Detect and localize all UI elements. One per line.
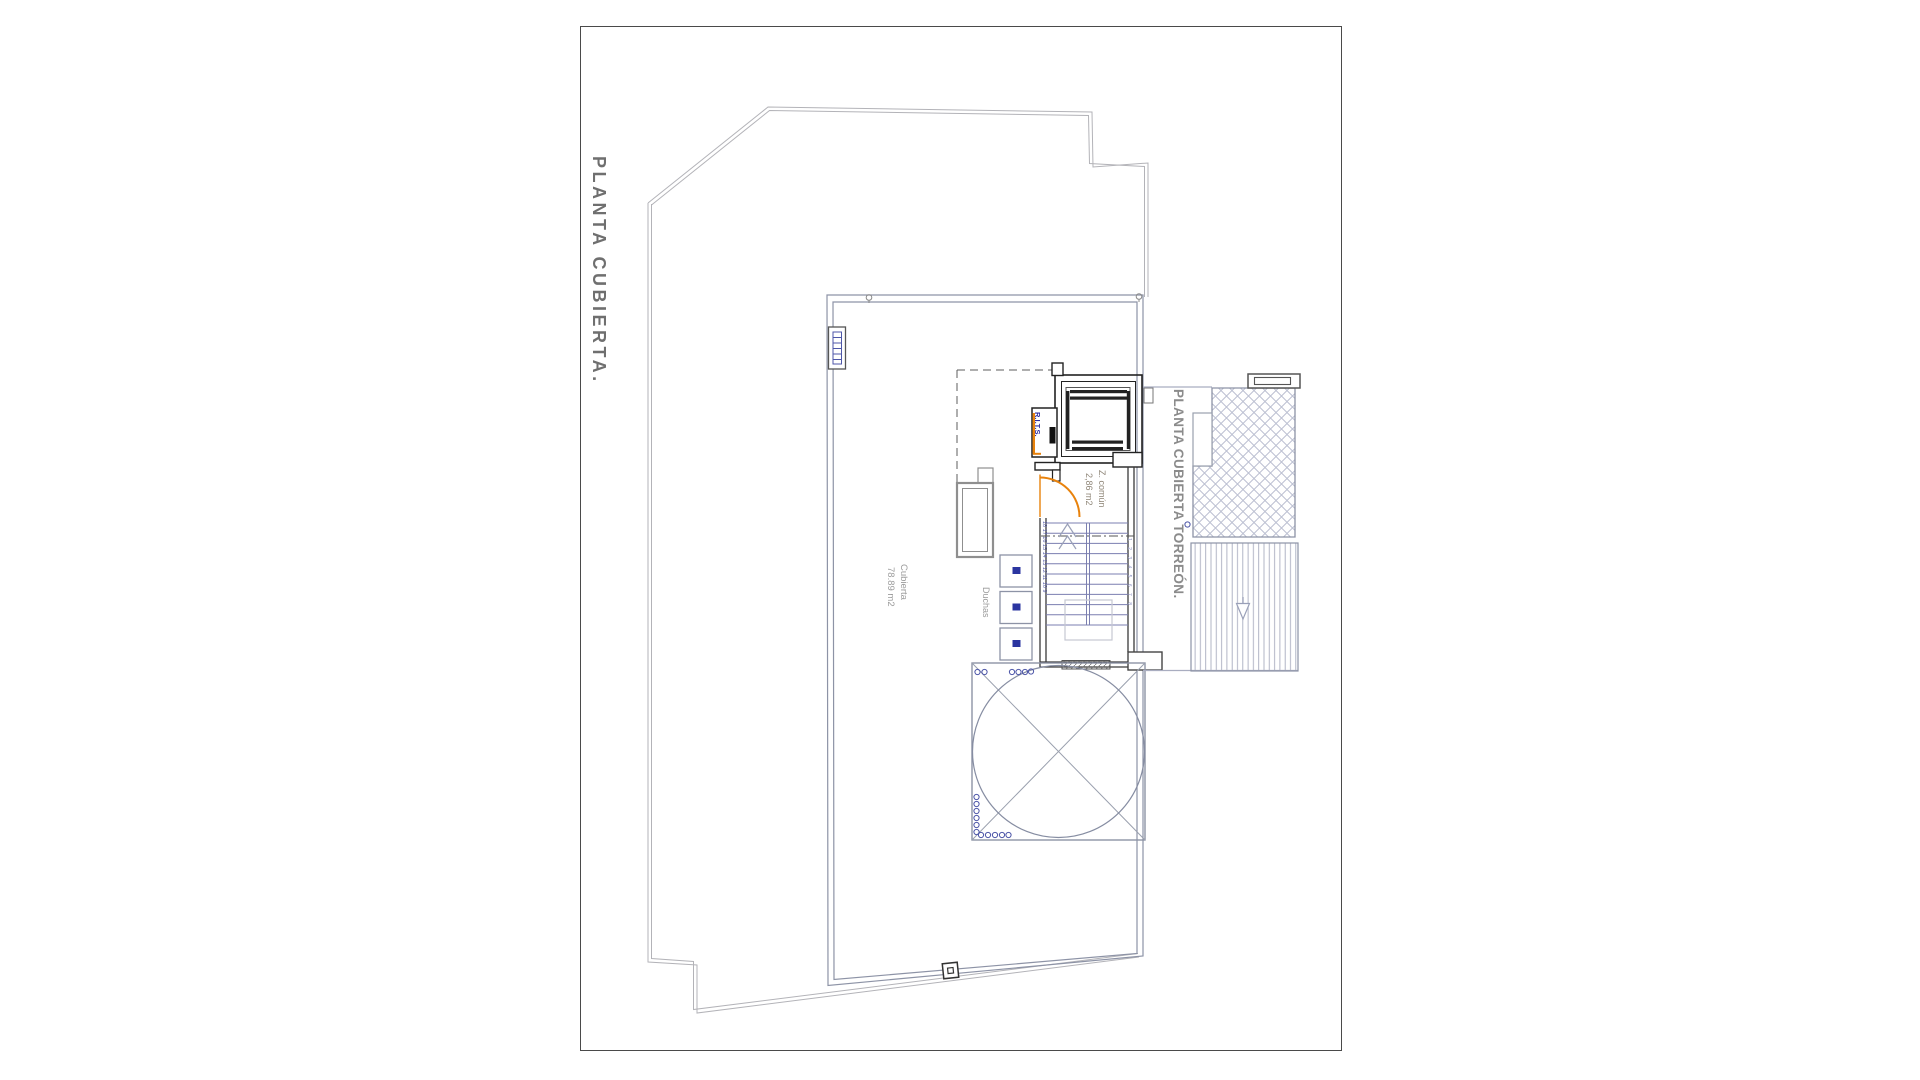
parcel-boundary	[648, 107, 1148, 1013]
roof-area-label: Cubierta	[898, 564, 909, 620]
skylight	[972, 663, 1145, 840]
stair-landing	[1065, 600, 1112, 640]
elevator-machine-icon	[1066, 390, 1130, 450]
skylight-fixings	[974, 669, 1034, 838]
stair-numbers-right: 1 2 3 4 5 6 7 8	[1126, 538, 1132, 628]
rits-door-leaf	[1050, 427, 1056, 444]
stair-threshold	[1062, 661, 1110, 670]
stair-numbers-left: 18 17 16 15 14 13 12 11 10 9	[1041, 521, 1047, 627]
showers-label: Duchas	[981, 587, 991, 627]
stair-treads	[1046, 523, 1128, 625]
torreon-roof	[1143, 374, 1300, 671]
torreon-title: PLANTA CUBIERTA TORREÓN.	[1171, 389, 1186, 599]
telecom-room-label: R.I.T.S.	[1033, 412, 1042, 456]
drawing-canvas: PLANTA CUBIERTA. PLANTA CUBIERTA TORREÓN…	[0, 0, 1920, 1080]
roof-area-value: 78.89 m2	[885, 567, 896, 623]
ladder-icon	[829, 327, 846, 369]
shower-trays	[1000, 555, 1032, 660]
elevator	[1052, 363, 1153, 467]
floor-plan-drawing	[0, 0, 1920, 1080]
torreon-vent	[1248, 374, 1300, 388]
common-zone-value: 2,86 m2	[1084, 473, 1094, 517]
roof-drain-icon	[942, 962, 958, 978]
common-zone-label: Z. común	[1097, 470, 1107, 520]
sheet-title: PLANTA CUBIERTA.	[588, 156, 609, 428]
planter	[957, 468, 993, 557]
